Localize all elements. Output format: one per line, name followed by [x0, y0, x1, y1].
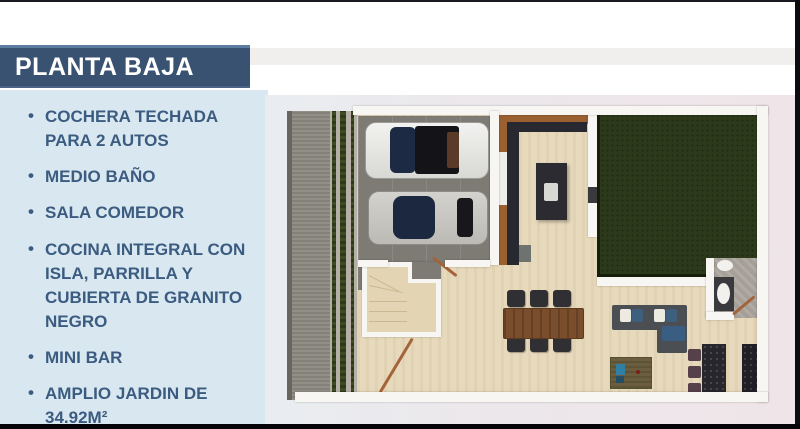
street [287, 111, 330, 400]
bath-sink [717, 260, 733, 271]
frame-bar-top [0, 0, 800, 2]
sofa-pillow [632, 309, 643, 322]
refrigerator [498, 152, 507, 205]
frame-bar-bottom [0, 424, 800, 429]
feature-cocina: COCINA INTEGRAL CON ISLA, PARRILLA Y CUB… [28, 238, 260, 335]
bath-wall [706, 312, 734, 320]
feature-mini-bar: MINI BAR [28, 346, 260, 370]
hedge-strip [332, 111, 336, 400]
side-counter [742, 344, 757, 398]
coffee-table-tray [616, 376, 624, 383]
car-1-interior [447, 132, 459, 168]
feature-sala-comedor: SALA COMEDOR [28, 201, 260, 225]
staircase [362, 262, 441, 337]
stair-step [369, 321, 407, 322]
garden-wall [597, 277, 712, 286]
dining-chair [553, 290, 571, 307]
rug-decor [636, 370, 640, 374]
garage-wall [445, 260, 490, 267]
frame-bar-right [795, 0, 800, 429]
garden-pillar-cap [588, 187, 597, 203]
page-title: PLANTA BAJA [0, 45, 250, 88]
car-1-windshield [390, 127, 416, 173]
mini-bar-counter [702, 344, 726, 398]
bar-stool [688, 349, 701, 361]
feature-cochera: COCHERA TECHADA PARA 2 AUTOS [28, 105, 260, 153]
garden-pillar-wall [588, 111, 597, 237]
dining-table [503, 308, 584, 339]
feature-jardin: AMPLIO JARDIN DE 34.92M² [28, 382, 260, 429]
features-panel: COCHERA TECHADA PARA 2 AUTOS MEDIO BAÑO … [0, 90, 268, 424]
street-curb [287, 111, 292, 400]
bar-stool [688, 366, 701, 378]
floor-plan-render [265, 95, 795, 424]
garage-wall [358, 260, 388, 267]
feature-medio-bano: MEDIO BAÑO [28, 165, 260, 189]
hedge-strip [351, 111, 354, 400]
sofa-throw [662, 326, 685, 341]
exterior-wall-right [757, 106, 768, 402]
sofa-pillow [666, 309, 677, 322]
kitchen-island [536, 163, 567, 220]
car-1 [365, 122, 489, 179]
toilet [717, 283, 730, 304]
dining-chair [530, 290, 548, 307]
car-2-windshield [393, 196, 435, 239]
dining-chair [507, 290, 525, 307]
kitchen-granite-left [507, 124, 519, 265]
garage-wall [490, 111, 499, 265]
sofa-pillow [620, 309, 631, 322]
area-rug [610, 357, 652, 389]
car-2 [368, 191, 488, 245]
exterior-wall-top [353, 106, 768, 115]
presentation-slide: PLANTA BAJA COCHERA TECHADA PARA 2 AUTOS… [0, 0, 800, 429]
exterior-wall-bottom [295, 392, 768, 402]
sofa-pillow [654, 309, 665, 322]
coffee-table [616, 364, 625, 375]
hedge-strip [340, 111, 346, 400]
island-sink [544, 183, 558, 201]
stair-notch [408, 262, 441, 283]
stair-step [369, 301, 407, 302]
bath-wall [706, 258, 714, 318]
stair-step [369, 311, 407, 312]
features-list: COCHERA TECHADA PARA 2 AUTOS MEDIO BAÑO … [0, 90, 268, 429]
garden [597, 113, 757, 277]
car-2-rear-window [457, 198, 473, 237]
